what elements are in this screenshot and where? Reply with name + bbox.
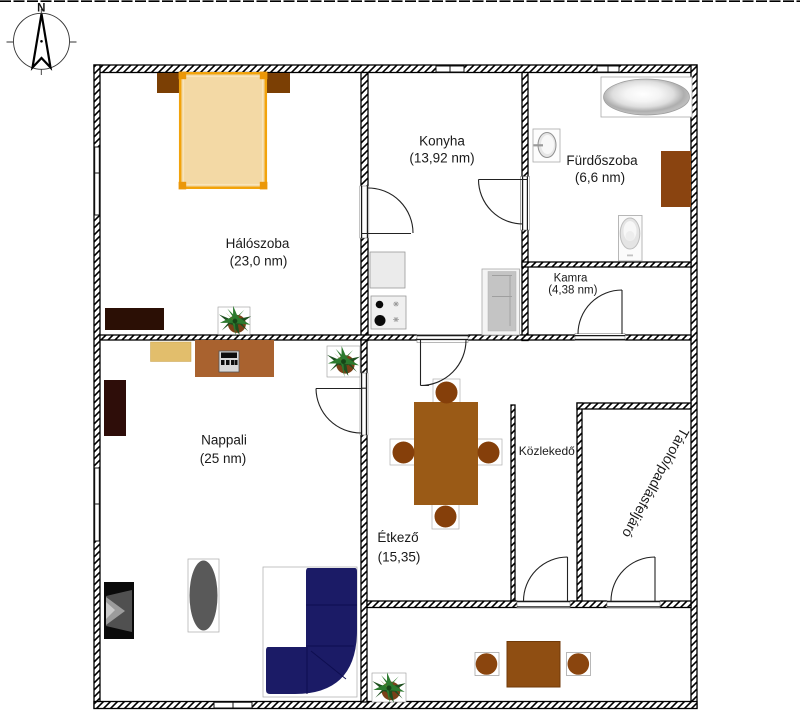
svg-text:Nappali: Nappali <box>201 433 247 448</box>
svg-text:(6,6 nm): (6,6 nm) <box>575 170 625 185</box>
svg-text:Konyha: Konyha <box>419 134 465 149</box>
svg-text:(25 nm): (25 nm) <box>200 451 247 466</box>
svg-text:(15,35): (15,35) <box>378 550 421 565</box>
svg-text:Étkező: Étkező <box>377 530 418 545</box>
svg-text:Kamra: Kamra <box>554 273 588 285</box>
svg-text:N: N <box>37 3 45 15</box>
svg-text:Közlekedő: Közlekedő <box>519 444 575 458</box>
svg-text:(13,92 nm): (13,92 nm) <box>409 151 474 166</box>
svg-text:(4,38 nm): (4,38 nm) <box>548 285 597 297</box>
svg-text:Fürdőszoba: Fürdőszoba <box>566 153 638 168</box>
svg-text:Hálószoba: Hálószoba <box>226 236 290 251</box>
svg-text:(23,0 nm): (23,0 nm) <box>230 254 288 269</box>
